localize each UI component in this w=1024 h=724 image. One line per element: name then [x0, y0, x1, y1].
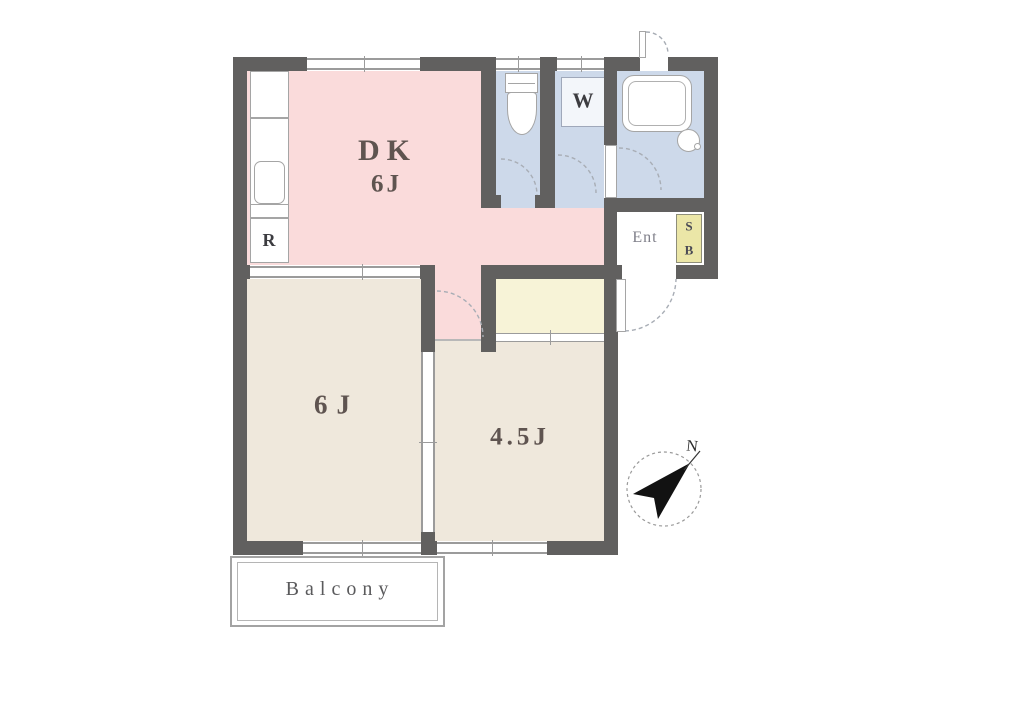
- entrance-door-arc: [625, 279, 676, 331]
- washer-label: W: [573, 91, 594, 112]
- wall-segment: [233, 265, 250, 279]
- window: [437, 542, 547, 554]
- wall-segment: [617, 198, 718, 212]
- closet: [496, 279, 604, 333]
- wall-segment: [481, 265, 496, 352]
- wall-segment: [481, 195, 501, 208]
- closet-sliding-door: [496, 333, 604, 342]
- room-dk-hall-strip: [481, 208, 604, 265]
- compass-north-label: N: [685, 438, 698, 455]
- wall-segment: [421, 532, 435, 555]
- wall-segment: [233, 57, 247, 555]
- wall-segment: [547, 541, 618, 555]
- wall-segment: [481, 57, 496, 208]
- window: [557, 58, 604, 70]
- counter-divider: [250, 117, 289, 119]
- room-4-5j-label: 4.5J: [486, 425, 550, 450]
- bath-faucet: [694, 143, 701, 150]
- window: [303, 542, 421, 554]
- balcony-label: Balcony: [280, 579, 395, 599]
- wall-segment: [421, 265, 435, 352]
- bath-door-leaf: [605, 145, 617, 198]
- shoebox-letter-b: B: [685, 244, 694, 257]
- room-dk-corridor: [435, 265, 481, 341]
- floor-plan: DK 6J 6J 4.5J W R Ent S B Balcony N: [0, 0, 1024, 724]
- entrance-door-leaf: [616, 279, 626, 332]
- toilet-tank: [505, 73, 538, 93]
- bath-window-door-arc: [646, 32, 668, 54]
- dk-room-label: DK: [351, 136, 417, 166]
- kitchen-sink: [254, 161, 285, 204]
- refrigerator-label: R: [263, 231, 276, 249]
- wall-segment: [540, 57, 555, 208]
- wall-segment: [233, 541, 303, 555]
- wall-segment: [604, 57, 617, 145]
- wall-segment: [676, 265, 718, 279]
- sliding-door: [250, 266, 420, 278]
- compass-north-arrow: [633, 463, 690, 519]
- bath-window-door-leaf: [639, 31, 646, 58]
- wall-segment: [604, 198, 617, 265]
- window: [307, 58, 420, 70]
- counter-divider: [250, 204, 289, 205]
- wall-segment: [704, 57, 718, 279]
- bathtub: [622, 75, 692, 132]
- door-threshold: [435, 339, 481, 341]
- shoebox-letter-s: S: [685, 220, 692, 233]
- wall-segment: [481, 265, 618, 279]
- compass-circle: [627, 452, 701, 526]
- window: [496, 58, 540, 70]
- sliding-partition: [421, 352, 435, 532]
- room-6j-label: 6J: [305, 392, 359, 419]
- compass: [627, 451, 701, 526]
- dk-room-size: 6J: [368, 172, 402, 197]
- wall-segment: [535, 195, 555, 208]
- entrance-label: Ent: [632, 230, 657, 246]
